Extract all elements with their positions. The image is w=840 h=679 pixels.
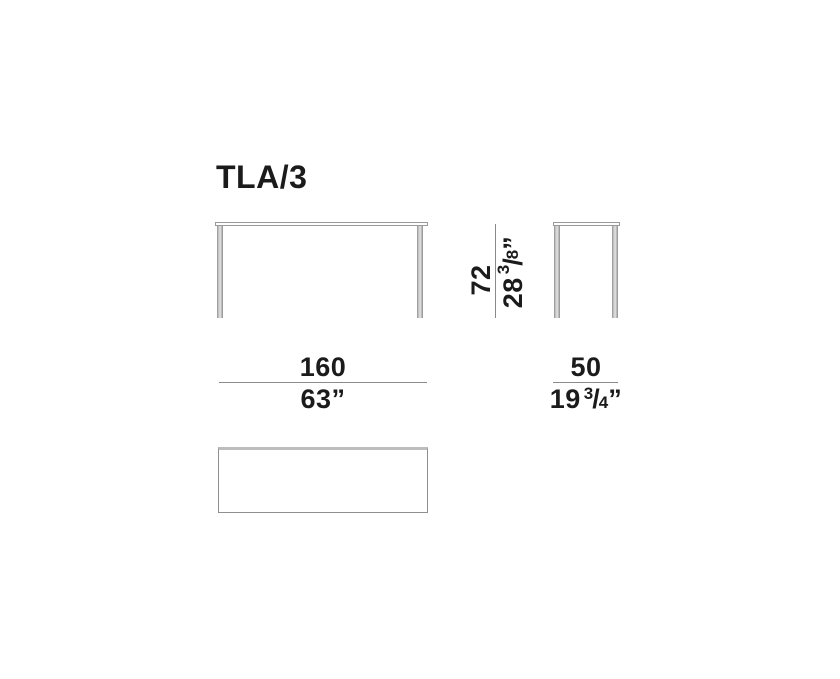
depth-in-denominator: 4 [599, 393, 608, 412]
depth-dimension-group: 50 193/4” [541, 352, 631, 415]
technical-drawing-canvas: TLA/3 72 283/8” 160 63” 50 193/4” [0, 0, 840, 679]
depth-in-main: 19 [550, 384, 581, 414]
front-tabletop [215, 222, 428, 226]
depth-in-quote: ” [608, 384, 622, 414]
depth-in-numerator: 3 [584, 384, 593, 403]
width-dimension-inches: 63” [219, 383, 427, 415]
side-elevation-view [553, 222, 620, 318]
depth-dimension-cm: 50 [541, 352, 631, 382]
product-code-title: TLA/3 [216, 159, 307, 196]
width-dimension-group: 160 63” [219, 352, 427, 415]
height-in-denominator: 8 [503, 250, 523, 259]
height-in-numerator: 3 [494, 265, 514, 274]
height-in-main: 28 [498, 277, 529, 308]
side-tabletop [553, 222, 620, 226]
height-in-quote: ” [498, 236, 529, 250]
side-left-leg [554, 226, 560, 318]
plan-top-view [218, 447, 428, 513]
front-right-leg [417, 226, 423, 318]
side-right-leg [612, 226, 618, 318]
height-cm-value: 72 [466, 264, 497, 295]
width-dimension-cm: 160 [219, 352, 427, 382]
depth-dimension-inches: 193/4” [541, 383, 631, 415]
front-left-leg [217, 226, 223, 318]
height-dimension-inches: 283/8” [493, 172, 533, 372]
front-elevation-view [215, 222, 428, 318]
